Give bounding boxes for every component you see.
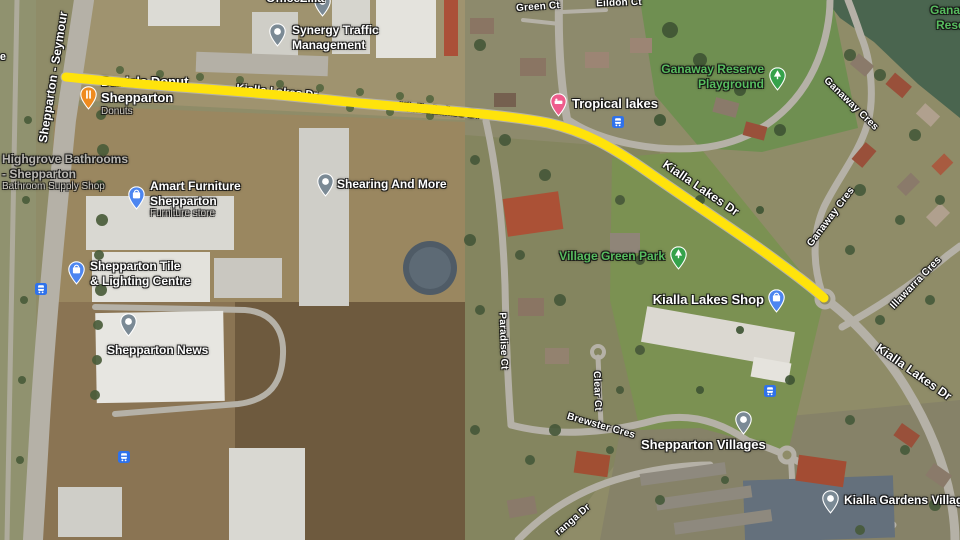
poi-label-ganaway-reserve-playground[interactable]: Ganaway ReservePlayground [661, 62, 764, 91]
poi-label-line: & Lighting Centre [90, 274, 191, 289]
poi-label-line: Tropical lakes [572, 96, 658, 112]
poi-label-line: Ganaway Reserve [661, 62, 764, 77]
poi-label-line: - Shepparton [2, 167, 128, 182]
tree-pin-icon-ganaway-reserve-playground[interactable] [769, 67, 786, 91]
poi-label-line: Shepparton News [107, 343, 208, 358]
poi-label-line: Highgrove Bathrooms [2, 152, 128, 167]
gray-dot-pin-icon-kialla-gardens-village[interactable] [822, 490, 839, 514]
road-label-paradise-ct: Paradise Ct [497, 312, 510, 370]
gray-dot-pin-icon-shepparton-news[interactable] [120, 313, 137, 337]
shopping-pin-icon-amart-furniture-shepparton[interactable] [128, 186, 145, 210]
gray-dot-pin-icon-shearing-and-more[interactable] [317, 173, 334, 197]
poi-label-line: Ganaway [930, 3, 960, 18]
poi-label-line: Reserve [936, 18, 960, 33]
poi-label-shearing-and-more[interactable]: Shearing And More [337, 177, 447, 192]
road-label-eildon-ct: Eildon Ct [596, 0, 642, 9]
shopping-pin-icon-kialla-lakes-shop[interactable] [768, 289, 785, 313]
poi-label-highgrove-bathrooms[interactable]: Highgrove Bathrooms- SheppartonBathroom … [2, 152, 128, 193]
poi-label-line: OfficeZilla [266, 0, 324, 6]
poi-category-label: Bathroom Supply Shop [2, 181, 128, 193]
poi-label-village-green-park[interactable]: Village Green Park [559, 249, 665, 264]
satellite-map-canvas[interactable]: Shepparton - SeymourKialla Lakes DrKiall… [0, 0, 960, 540]
poi-label-officezilla[interactable]: OfficeZilla [266, 0, 324, 6]
transit-station-icon-stop-highway[interactable] [35, 282, 47, 294]
road-label-clear-ct: Clear Ct [591, 371, 603, 411]
poi-label-line: Synergy Traffic [292, 23, 379, 38]
road-label-edge-fragment: e [0, 51, 6, 63]
poi-label-shepparton-tile-lighting[interactable]: Shepparton Tile& Lighting Centre [90, 259, 191, 288]
poi-label-line: Amart Furniture [150, 179, 241, 194]
poi-label-tropical-lakes[interactable]: Tropical lakes [572, 96, 658, 112]
gray-dot-pin-icon-synergy-traffic-management[interactable] [269, 23, 286, 47]
poi-label-line: Shepparton [150, 194, 241, 209]
poi-label-amart-furniture-shepparton[interactable]: Amart FurnitureSheppartonFurniture store [150, 179, 241, 220]
poi-label-line: Shepparton Villages [641, 437, 766, 453]
transit-station-icon-stop-tropical-lakes[interactable] [612, 115, 624, 127]
poi-label-line: Shepparton Tile [90, 259, 191, 274]
poi-category-label: Furniture store [150, 208, 241, 220]
poi-label-shepparton-news[interactable]: Shepparton News [107, 343, 208, 358]
poi-label-line: Kialla Gardens Village [844, 493, 960, 508]
poi-label-line: Shearing And More [337, 177, 447, 192]
gray-dot-pin-icon-shepparton-villages[interactable] [735, 411, 752, 435]
poi-label-shepparton-villages[interactable]: Shepparton Villages [641, 437, 766, 453]
transit-station-icon-stop-kialla-lakes[interactable] [764, 384, 776, 396]
poi-label-synergy-traffic-management[interactable]: Synergy TrafficManagement [292, 23, 379, 52]
poi-label-kialla-lakes-shop[interactable]: Kialla Lakes Shop [653, 292, 764, 308]
poi-label-line: Management [292, 38, 379, 53]
tree-pin-icon-village-green-park[interactable] [670, 246, 687, 270]
poi-label-kialla-gardens-village[interactable]: Kialla Gardens Village [844, 493, 960, 508]
poi-label-line: Kialla Lakes Shop [653, 292, 764, 308]
poi-label-ganaway-reserve-corner[interactable]: GanawayReserve [930, 3, 960, 32]
transit-station-icon-stop-news[interactable] [118, 450, 130, 462]
lodging-pin-icon-tropical-lakes[interactable] [550, 93, 567, 117]
poi-label-line: Playground [661, 77, 764, 92]
poi-label-line: Village Green Park [559, 249, 665, 264]
shopping-pin-icon-shepparton-tile-lighting[interactable] [68, 261, 85, 285]
restaurant-pin-icon-daniels-donut-shepparton[interactable] [80, 86, 97, 110]
